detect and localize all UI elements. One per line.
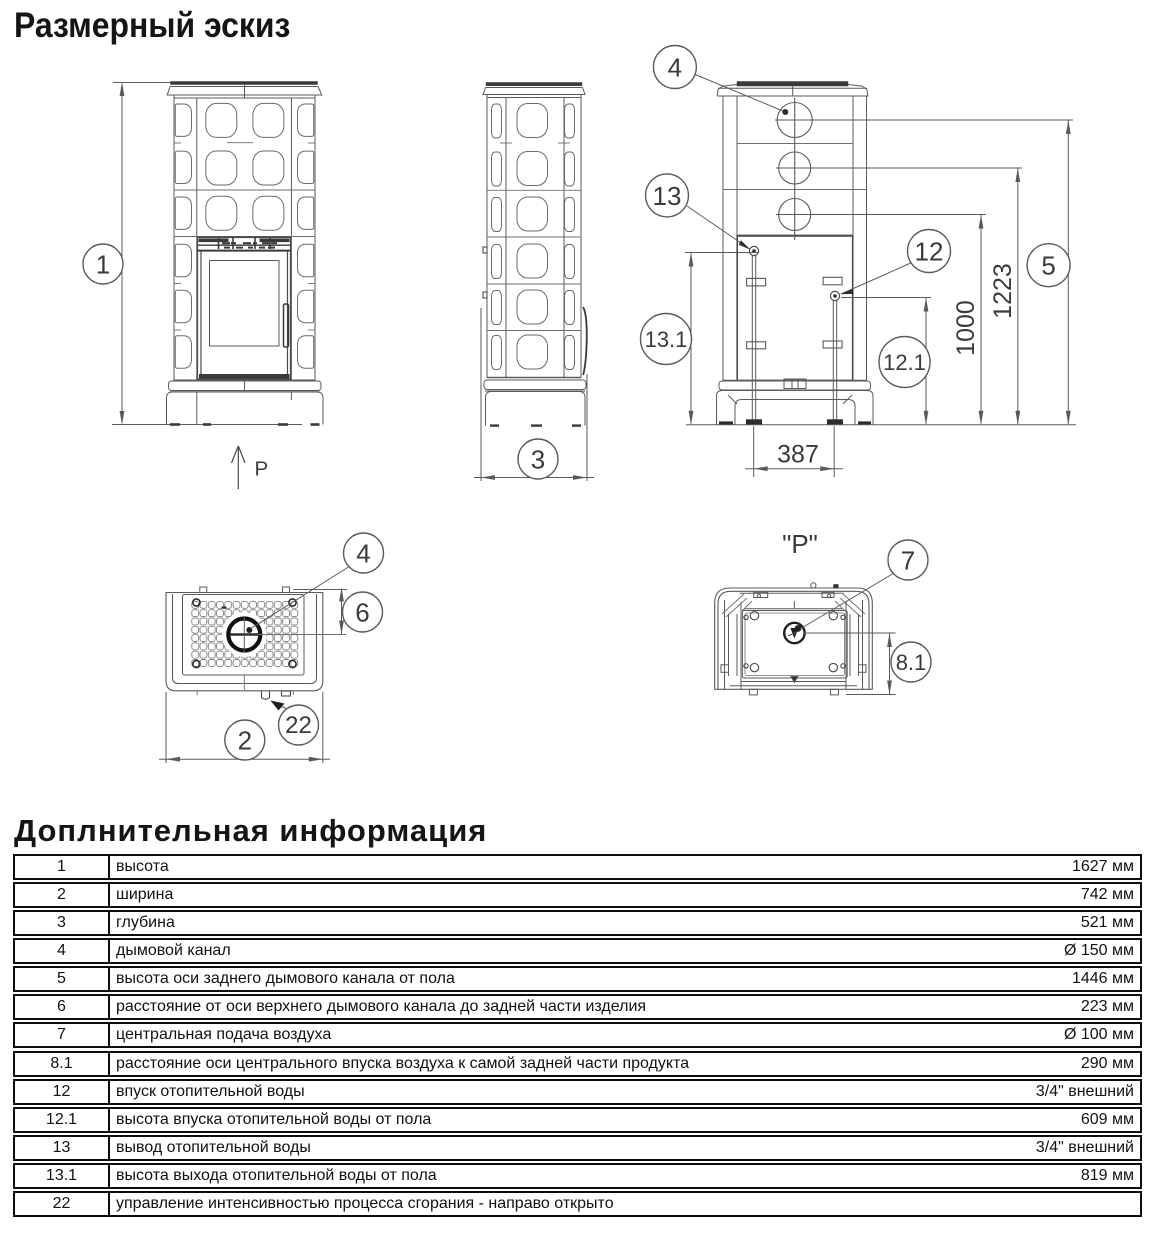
svg-text:22: 22 bbox=[285, 712, 312, 739]
svg-text:5: 5 bbox=[1041, 251, 1055, 281]
svg-text:7: 7 bbox=[901, 546, 915, 576]
svg-text:2: 2 bbox=[238, 726, 252, 756]
svg-text:4: 4 bbox=[668, 53, 682, 83]
svg-text:13.1: 13.1 bbox=[645, 327, 688, 352]
svg-text:13: 13 bbox=[653, 181, 682, 211]
svg-text:"P": "P" bbox=[782, 529, 818, 559]
svg-text:387: 387 bbox=[777, 441, 819, 469]
svg-text:1000: 1000 bbox=[952, 300, 980, 356]
svg-text:1: 1 bbox=[96, 250, 110, 280]
svg-text:4: 4 bbox=[356, 539, 370, 569]
svg-text:3: 3 bbox=[531, 445, 545, 475]
svg-text:8.1: 8.1 bbox=[896, 650, 927, 675]
svg-text:1223: 1223 bbox=[989, 263, 1017, 319]
svg-text:12: 12 bbox=[915, 237, 944, 267]
svg-text:12.1: 12.1 bbox=[883, 350, 926, 375]
svg-text:6: 6 bbox=[355, 598, 369, 628]
svg-text:P: P bbox=[255, 458, 269, 481]
